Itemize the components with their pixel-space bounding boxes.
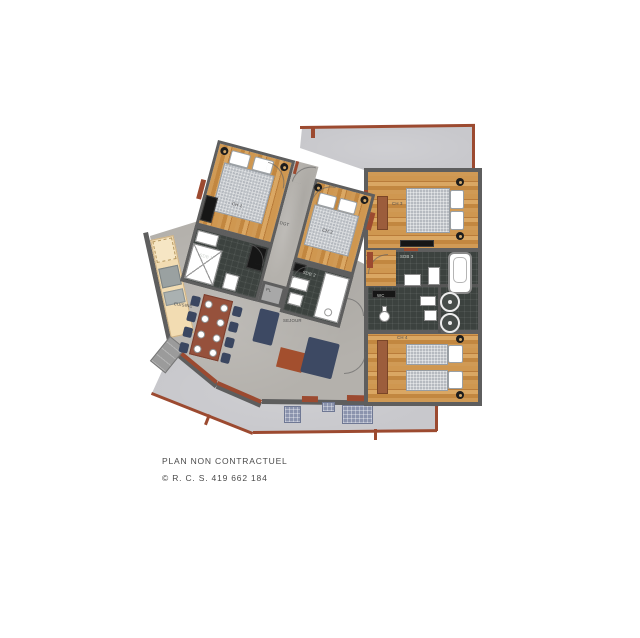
terrace-top-railing-right (472, 125, 475, 171)
bedside-lamp-icon (456, 391, 464, 399)
balcony-furniture (342, 405, 373, 424)
washer-icon (440, 292, 460, 312)
sink-icon (420, 296, 436, 306)
pillow (450, 211, 464, 230)
bedside-lamp-icon (456, 178, 464, 186)
bed-ch4-duvet (406, 344, 448, 365)
patio-door (302, 396, 318, 402)
room-label-wc: WC (377, 294, 385, 298)
room-label-ch3: CH 3 (392, 202, 403, 206)
wardrobe (377, 340, 388, 394)
door-threshold (404, 248, 418, 251)
kitchen-counter-optional (152, 237, 176, 263)
balcony-furniture (322, 402, 335, 412)
dresser (400, 240, 434, 247)
bed-ch3-duvet (406, 188, 450, 233)
bedside-lamp-icon (456, 335, 464, 343)
toilet-bowl-icon (379, 311, 390, 322)
room-label-ch4: CH 4 (397, 336, 408, 340)
terrace-top (295, 122, 480, 174)
rcs-number: © R. C. S. 419 662 184 (162, 473, 268, 483)
bedside-lamp-icon (456, 232, 464, 240)
bed-ch4-duvet (406, 370, 448, 391)
bathtub-icon (448, 252, 472, 294)
pillow (448, 371, 463, 389)
room-label-sejour: SEJOUR (283, 319, 302, 323)
floor-plan-page: CH 1 SDB 1 DGT CH 2 SDB 2 PL CH 3 SDB 3 … (0, 0, 640, 638)
terrace-top-post (311, 127, 315, 138)
plan-disclaimer: PLAN NON CONTRACTUEL (162, 456, 288, 466)
balcony-furniture (284, 406, 301, 423)
railing-post (374, 429, 377, 440)
washer-icon (440, 313, 460, 333)
toilet-icon (428, 267, 440, 285)
pillow (448, 345, 463, 363)
sink-icon (404, 274, 421, 286)
terrace-bottom-railing (253, 429, 437, 433)
terrace-bottom-railing-right (435, 404, 438, 431)
pillow (450, 190, 464, 209)
sink-icon (424, 310, 437, 321)
room-label-sdb3: SDB 3 (400, 255, 413, 259)
